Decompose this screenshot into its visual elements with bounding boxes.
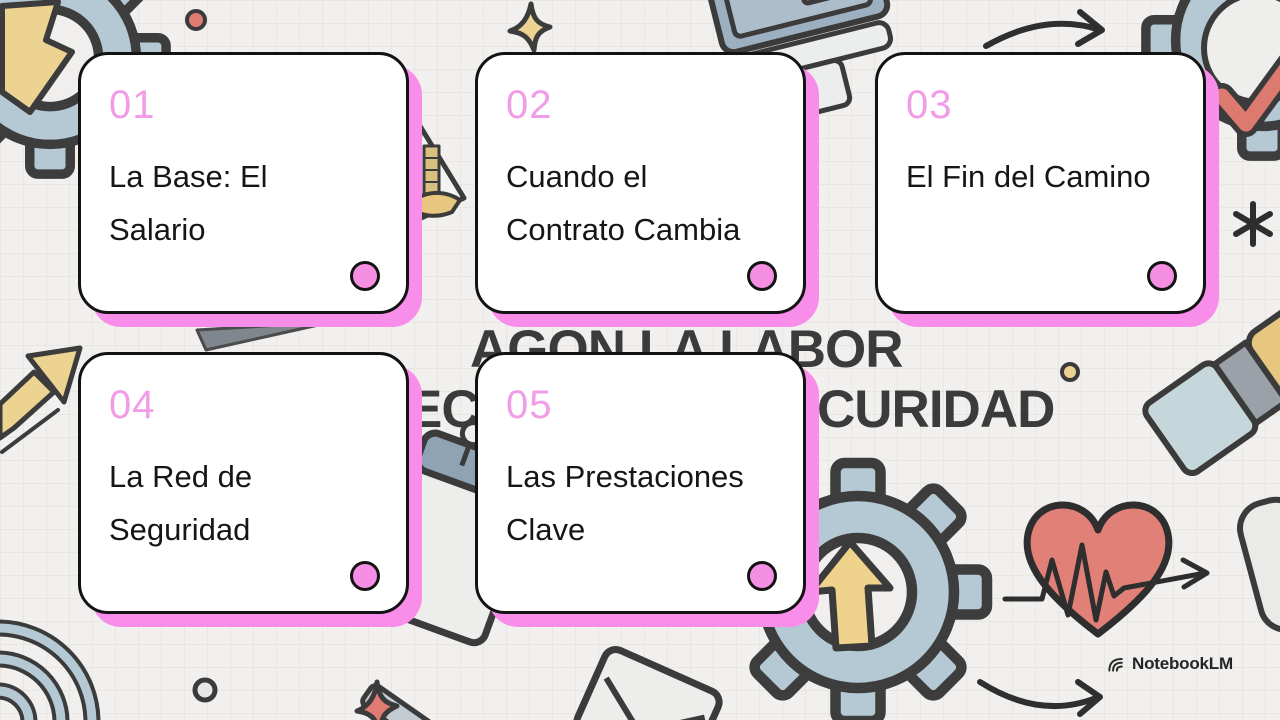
red-dot-icon — [187, 11, 205, 29]
card-number: 04 — [109, 381, 378, 429]
card-02: 02 Cuando el Contrato Cambia — [475, 52, 806, 314]
slide-canvas: AGON LA LABOR EC CURIDAD 01 La Base: El … — [0, 0, 1280, 720]
card-dot-icon — [747, 261, 777, 291]
ruler-wedge-icon — [197, 322, 332, 350]
notebooklm-logo: NotebookLM — [1106, 654, 1233, 674]
card-dot-icon — [747, 561, 777, 591]
envelope-doodle-icon — [573, 646, 723, 720]
card-number: 05 — [506, 381, 775, 429]
card-dot-icon — [350, 261, 380, 291]
background-title-line2-left: EC — [407, 383, 479, 436]
yellow-dot-icon — [1062, 364, 1078, 380]
card-dot-icon — [1147, 261, 1177, 291]
card-title: La Base: El Salario — [109, 151, 364, 256]
notebooklm-label: NotebookLM — [1132, 654, 1233, 674]
heart-pulse-icon — [1005, 505, 1207, 634]
rings-icon — [0, 628, 92, 720]
card-number: 01 — [109, 81, 378, 129]
gray-dot-icon — [195, 680, 215, 700]
card-dot-icon — [350, 561, 380, 591]
card-01: 01 La Base: El Salario — [78, 52, 409, 314]
card-title: Las Prestaciones Clave — [506, 451, 761, 556]
card-title: El Fin del Camino — [906, 151, 1161, 204]
hand-doodle-icon — [1234, 494, 1280, 636]
scales-doodle-icon — [417, 126, 464, 220]
card-04: 04 La Red de Seguridad — [78, 352, 409, 614]
curved-arrow-top-icon — [986, 12, 1102, 46]
star-sparkle-icon — [510, 4, 550, 50]
notebooklm-icon — [1106, 654, 1126, 674]
card-title: La Red de Seguridad — [109, 451, 364, 556]
background-title-line2-right: CURIDAD — [817, 383, 1054, 436]
card-03: 03 El Fin del Camino — [875, 52, 1206, 314]
curved-arrow-bottom-icon — [980, 682, 1100, 714]
card-05: 05 Las Prestaciones Clave — [475, 352, 806, 614]
card-number: 02 — [506, 81, 775, 129]
asterisk-icon — [1236, 204, 1270, 244]
yellow-arrow-icon — [0, 348, 80, 452]
card-number: 03 — [906, 81, 1175, 129]
card-title: Cuando el Contrato Cambia — [506, 151, 761, 256]
